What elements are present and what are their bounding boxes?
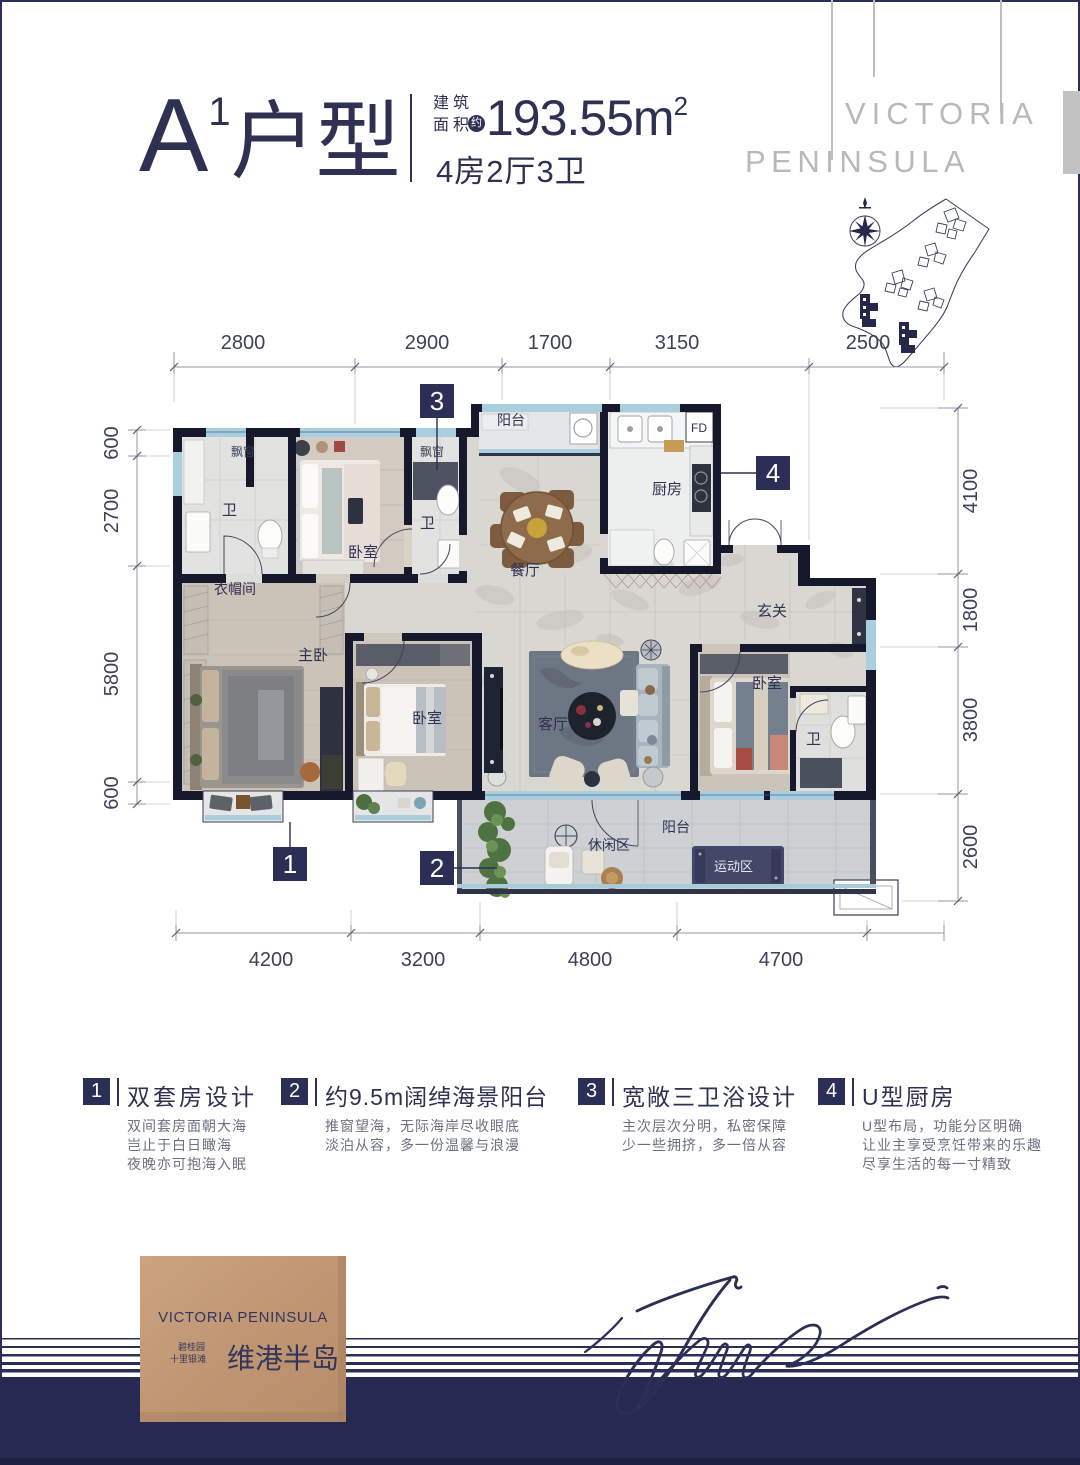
svg-text:卧室: 卧室 — [752, 675, 782, 692]
svg-text:2500: 2500 — [846, 332, 891, 354]
svg-text:阳台: 阳台 — [497, 412, 525, 428]
svg-text:餐厅: 餐厅 — [510, 562, 540, 579]
svg-text:VICTORIA PENINSULA: VICTORIA PENINSULA — [158, 1309, 328, 1326]
svg-text:1700: 1700 — [528, 332, 573, 354]
svg-text:3200: 3200 — [401, 949, 446, 971]
svg-text:飘窗: 飘窗 — [420, 445, 444, 459]
svg-text:飘窗: 飘窗 — [231, 445, 255, 459]
svg-text:4: 4 — [766, 458, 780, 488]
svg-text:卧室: 卧室 — [348, 544, 378, 561]
svg-text:阳台: 阳台 — [662, 819, 690, 835]
svg-text:FD: FD — [691, 421, 707, 435]
svg-text:碧桂园: 碧桂园 — [178, 1341, 205, 1352]
svg-text:卧室: 卧室 — [412, 710, 442, 727]
svg-text:1800: 1800 — [960, 588, 982, 633]
svg-text:1: 1 — [283, 849, 297, 879]
svg-text:2600: 2600 — [960, 825, 982, 870]
svg-text:玄关: 玄关 — [757, 603, 787, 620]
svg-text:600: 600 — [101, 426, 123, 459]
svg-text:维港半岛: 维港半岛 — [227, 1343, 339, 1374]
svg-text:运动区: 运动区 — [714, 859, 753, 874]
svg-text:卫: 卫 — [420, 515, 435, 532]
svg-text:4200: 4200 — [249, 949, 294, 971]
svg-text:4800: 4800 — [568, 949, 613, 971]
svg-text:4100: 4100 — [960, 469, 982, 514]
svg-text:2900: 2900 — [405, 332, 450, 354]
svg-text:休闲区: 休闲区 — [588, 837, 630, 853]
svg-text:厨房: 厨房 — [652, 481, 682, 498]
svg-text:卫: 卫 — [222, 502, 237, 519]
svg-text:600: 600 — [101, 776, 123, 809]
svg-text:2700: 2700 — [101, 489, 123, 534]
svg-text:衣帽间: 衣帽间 — [214, 581, 256, 597]
svg-text:卫: 卫 — [806, 731, 821, 748]
svg-text:5800: 5800 — [101, 652, 123, 697]
svg-text:主卧: 主卧 — [298, 647, 328, 664]
svg-text:客厅: 客厅 — [538, 716, 568, 733]
svg-text:3: 3 — [430, 386, 444, 416]
svg-text:2800: 2800 — [221, 332, 266, 354]
svg-text:2: 2 — [430, 853, 444, 883]
svg-text:十里银滩: 十里银滩 — [170, 1353, 206, 1364]
svg-text:3800: 3800 — [960, 698, 982, 743]
svg-text:3150: 3150 — [655, 332, 700, 354]
svg-text:4700: 4700 — [759, 949, 804, 971]
